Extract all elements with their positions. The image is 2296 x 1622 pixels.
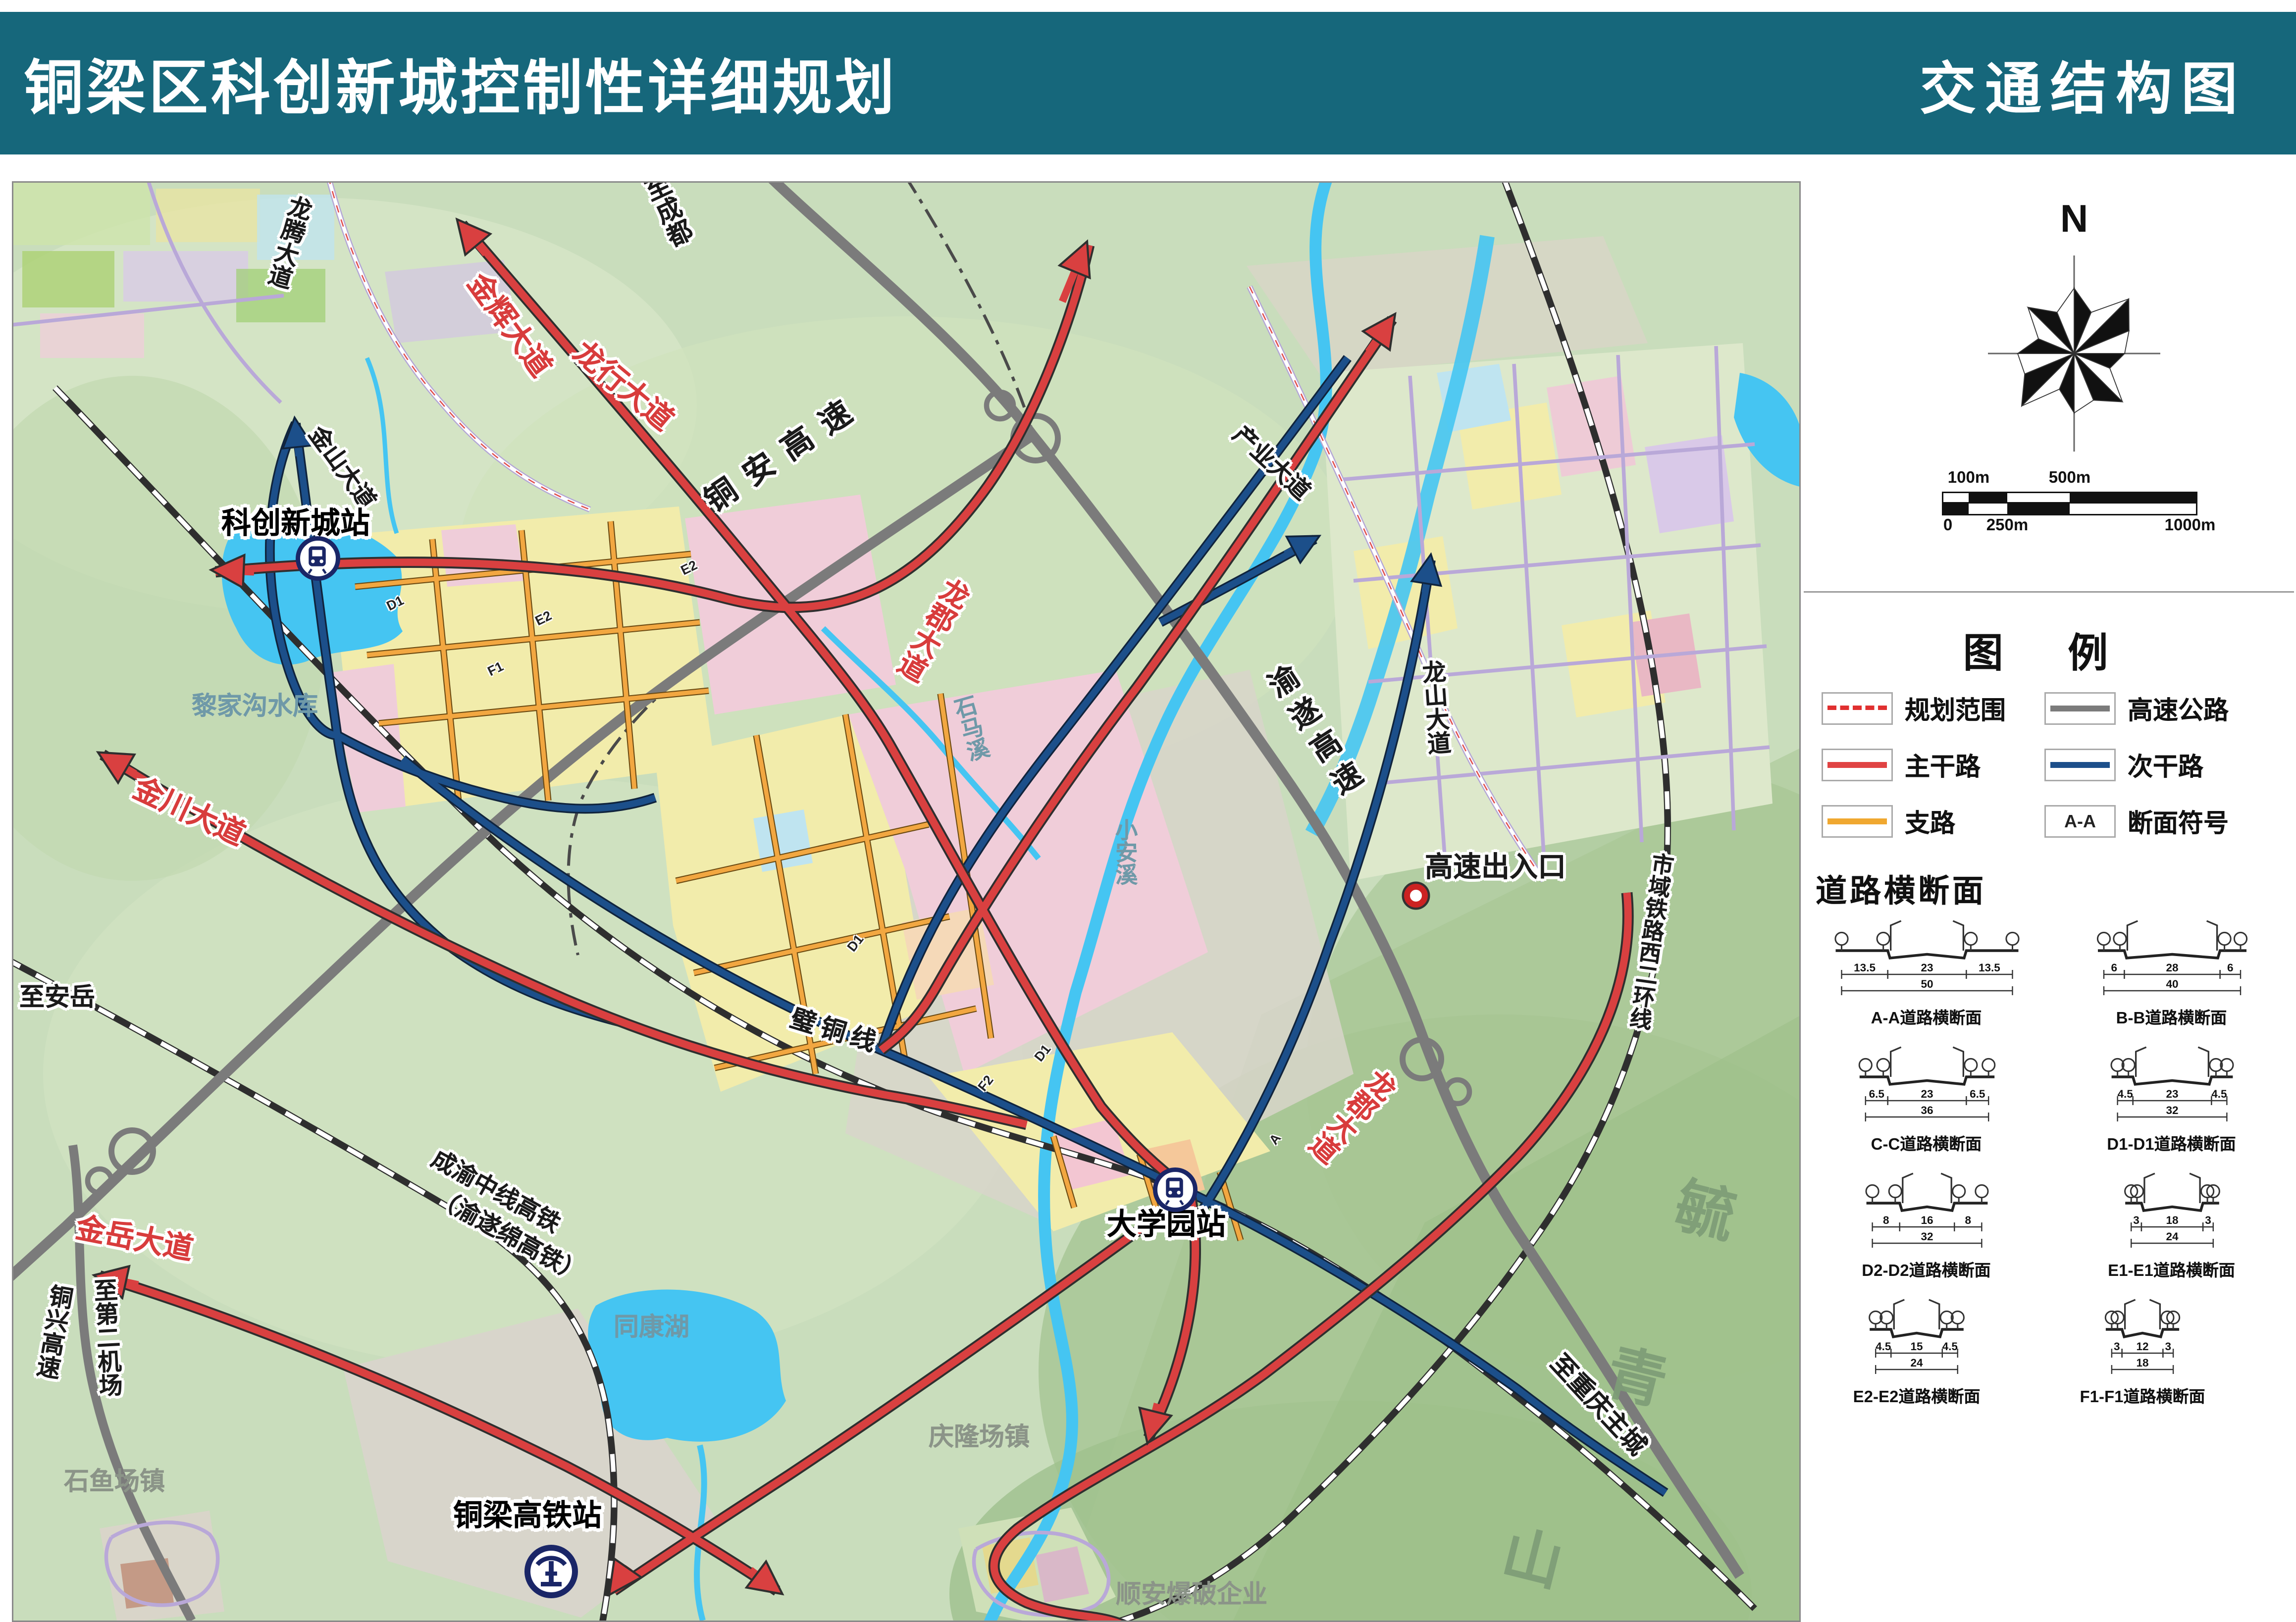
- legend-swatch-line: [2050, 761, 2110, 767]
- legend-item: 支路: [1822, 802, 2044, 839]
- section-diagram-D2-D2: 816832D2-D2道路横断面: [1814, 1165, 2039, 1282]
- section-diagram-A-A: 13.52313.550A-A道路横断面: [1814, 912, 2039, 1029]
- panel-divider: [1804, 591, 2294, 593]
- map-label-dark: 渝遂高速: [1258, 662, 1369, 809]
- scale-label: 500m: [2049, 469, 2090, 487]
- legend-swatch-box: A-A: [2064, 811, 2096, 831]
- scale-bar-row: [1943, 493, 2196, 504]
- svg-text:28: 28: [2165, 962, 2178, 974]
- svg-text:8: 8: [1882, 1214, 1888, 1226]
- section-caption: A-A道路横断面: [1814, 1006, 2039, 1029]
- svg-text:12: 12: [2136, 1340, 2148, 1353]
- section-drawing: 4.5234.532: [2059, 1038, 2285, 1130]
- svg-text:3: 3: [2114, 1340, 2120, 1353]
- metro-station-icon: [296, 536, 340, 581]
- legend-label: 规划范围: [1905, 689, 2006, 726]
- svg-text:23: 23: [2165, 1088, 2178, 1100]
- scale-label: 1000m: [2165, 517, 2216, 535]
- map-label-mtn: 青: [1600, 1341, 1673, 1416]
- map-label-dark: 铜兴高速: [30, 1282, 71, 1380]
- map-label-dark: 璧铜线: [787, 1006, 884, 1058]
- legend-label: 高速公路: [2128, 689, 2229, 726]
- map-label-mark: F1: [486, 660, 506, 679]
- north-rose: [1963, 242, 2186, 465]
- legend-swatch: [1822, 748, 1893, 781]
- map-label-area: 庆隆场镇: [929, 1424, 1030, 1451]
- section-caption: D2-D2道路横断面: [1814, 1258, 2039, 1282]
- map-label-mark: A: [1267, 1132, 1284, 1148]
- svg-text:4.5: 4.5: [1942, 1340, 1958, 1353]
- svg-text:6.5: 6.5: [1868, 1088, 1883, 1100]
- legend-swatch-line: [2050, 705, 2110, 711]
- map-label-area: 石鱼场镇: [64, 1469, 165, 1496]
- map-label-dark: 龙山大道: [1416, 659, 1448, 756]
- map-label-area: 顺安爆破企业: [1116, 1582, 1267, 1609]
- legend-swatch: [1822, 805, 1893, 837]
- scale-bar: 100m500m0250m1000m: [1943, 472, 2211, 556]
- legend-swatch-line: [1827, 818, 1887, 824]
- railway-station-icon: [524, 1545, 578, 1598]
- svg-text:15: 15: [1910, 1340, 1923, 1353]
- map-label-mark: D1: [845, 933, 867, 955]
- section-caption: E1-E1道路横断面: [2059, 1258, 2285, 1282]
- map-label-sta: 大学园站: [1107, 1211, 1226, 1242]
- planning-map: 金辉大道龙行大道龙郡大道龙郡大道金川大道金岳大道铜安高速渝遂高速至成都至安岳至重…: [12, 181, 1801, 1622]
- map-label-mtn: 山: [1496, 1522, 1569, 1597]
- svg-text:6.5: 6.5: [1969, 1088, 1984, 1100]
- map-label-dark: 市域铁路西二环线: [1626, 851, 1674, 1031]
- svg-text:4.5: 4.5: [1876, 1340, 1891, 1353]
- map-label-mark: D1: [385, 594, 406, 614]
- legend-swatch: A-A: [2044, 805, 2116, 837]
- svg-text:40: 40: [2165, 978, 2178, 990]
- legend-item: 高速公路: [2044, 689, 2285, 726]
- section-drawing: 312318: [2030, 1291, 2255, 1383]
- svg-text:16: 16: [1920, 1214, 1932, 1226]
- cross-sections-title: 道路横断面: [1816, 867, 1986, 912]
- legend-swatch: [2044, 748, 2116, 781]
- section-caption: C-C道路横断面: [1814, 1132, 2039, 1156]
- legend-label: 主干路: [1905, 746, 1981, 783]
- section-diagram-E2-E2: 4.5154.524E2-E2道路横断面: [1804, 1291, 2030, 1408]
- legend-swatch: [2044, 692, 2116, 724]
- svg-text:23: 23: [1920, 962, 1932, 974]
- svg-text:18: 18: [2165, 1214, 2178, 1226]
- section-drawing: 6.5236.536: [1814, 1038, 2039, 1130]
- svg-text:32: 32: [2165, 1104, 2178, 1116]
- section-diagram-D1-D1: 4.5234.532D1-D1道路横断面: [2059, 1038, 2285, 1156]
- legend-label: 断面符号: [2128, 802, 2229, 839]
- scale-label: 100m: [1948, 469, 1989, 487]
- section-diagram-F2-F2: 410418F2-F2道路横断面: [2255, 1291, 2296, 1408]
- svg-text:3: 3: [2165, 1340, 2171, 1353]
- section-drawing: 410418: [2255, 1291, 2296, 1383]
- svg-text:4.5: 4.5: [2117, 1088, 2132, 1100]
- legend-title: 图 例: [1801, 621, 2296, 679]
- section-caption: B-B道路横断面: [2059, 1006, 2285, 1029]
- north-arrow: N: [1955, 196, 2193, 472]
- map-label-mtn: 毓: [1669, 1175, 1741, 1250]
- svg-text:8: 8: [1964, 1214, 1971, 1226]
- map-label-red: 龙郡大道: [890, 572, 972, 684]
- map-label-sta: 科创新城站: [221, 509, 370, 541]
- map-labels-layer: 金辉大道龙行大道龙郡大道龙郡大道金川大道金岳大道铜安高速渝遂高速至成都至安岳至重…: [13, 183, 1799, 1621]
- map-label-dark: 至第二机场: [88, 1277, 119, 1397]
- svg-text:4.5: 4.5: [2211, 1088, 2226, 1100]
- section-drawing: 816832: [1814, 1165, 2039, 1257]
- svg-text:3: 3: [2133, 1214, 2139, 1226]
- svg-text:24: 24: [1910, 1357, 1923, 1369]
- map-label-mark: D1: [1033, 1043, 1054, 1065]
- svg-text:18: 18: [2136, 1357, 2148, 1369]
- section-drawing: 4.5154.524: [1804, 1291, 2030, 1383]
- map-label-dark: 铜安高速: [700, 389, 871, 519]
- svg-text:13.5: 13.5: [1978, 962, 2000, 974]
- svg-text:6: 6: [2110, 962, 2117, 974]
- scale-label: 250m: [1986, 517, 2028, 535]
- legend-swatch-dashed: [1827, 706, 1887, 710]
- map-label-dark: 产业大道: [1227, 423, 1313, 507]
- section-caption: F2-F2道路横断面: [2255, 1384, 2296, 1408]
- map-label-mark: E2: [679, 559, 700, 579]
- scale-label: 0: [1943, 517, 1952, 535]
- map-label-sta: 铜梁高铁站: [453, 1502, 602, 1533]
- section-diagram-B-B: 628640B-B道路横断面: [2059, 912, 2285, 1029]
- legend-label: 次干路: [2128, 746, 2203, 783]
- page: 铜梁区科创新城控制性详细规划 交通结构图: [0, 0, 2296, 1622]
- highway-exit-marker: [1404, 884, 1428, 908]
- map-label-water: 黎家沟水库: [192, 694, 318, 720]
- title-bar: 铜梁区科创新城控制性详细规划 交通结构图: [0, 12, 2296, 154]
- legend-item: A-A断面符号: [2044, 802, 2285, 839]
- scale-bar-row: [1943, 504, 2196, 514]
- map-label-mark: E2: [533, 609, 554, 629]
- map-label-water: 同康湖: [614, 1315, 689, 1341]
- map-label-mark: F2: [976, 1073, 997, 1094]
- section-caption: D1-D1道路横断面: [2059, 1132, 2285, 1156]
- map-label-dark: 高速出入口: [1425, 854, 1566, 884]
- svg-text:23: 23: [1920, 1088, 1932, 1100]
- svg-text:13.5: 13.5: [1853, 962, 1875, 974]
- section-drawing: 13.52313.550: [1814, 912, 2039, 1004]
- map-label-red: 金岳大道: [73, 1214, 196, 1267]
- svg-text:50: 50: [1920, 978, 1932, 990]
- map-label-dark: 至成都: [637, 181, 693, 252]
- section-diagram-C-C: 6.5236.536C-C道路横断面: [1814, 1038, 2039, 1156]
- map-label-red: 金川大道: [128, 774, 249, 853]
- legend-label: 支路: [1905, 802, 1955, 839]
- legend-item: 次干路: [2044, 746, 2285, 783]
- side-panel: N 100m500m0250m1000m 图 例 规划范围高速公路主干路次干路支…: [1801, 181, 2296, 1622]
- north-label: N: [1955, 196, 2193, 242]
- map-label-water: 小安溪: [1113, 818, 1136, 885]
- map-label-dark: 金山大道: [302, 423, 378, 515]
- legend-swatch-line: [1827, 761, 1887, 767]
- map-label-dark: 龙腾大道: [261, 192, 311, 290]
- svg-text:3: 3: [2204, 1214, 2211, 1226]
- legend-swatch: [1822, 692, 1893, 724]
- section-caption: E2-E2道路横断面: [1804, 1384, 2030, 1408]
- map-label-red: 龙行大道: [567, 337, 678, 438]
- section-diagram-F1-F1: 312318F1-F1道路横断面: [2030, 1291, 2255, 1408]
- legend: 规划范围高速公路主干路次干路支路A-A断面符号: [1822, 689, 2285, 839]
- metro-station-icon: [1153, 1167, 1198, 1212]
- map-label-red: 龙郡大道: [1302, 1062, 1399, 1166]
- legend-item: 主干路: [1822, 746, 2044, 783]
- drawing-title: 交通结构图: [1920, 43, 2246, 124]
- legend-item: 规划范围: [1822, 689, 2044, 726]
- page-title: 铜梁区科创新城控制性详细规划: [24, 40, 897, 126]
- map-label-red: 金辉大道: [461, 269, 556, 383]
- section-drawing: 318324: [2059, 1165, 2285, 1257]
- svg-text:36: 36: [1920, 1104, 1932, 1116]
- map-label-water: 石马溪: [949, 693, 991, 764]
- map-label-dark: 至安岳: [19, 985, 95, 1012]
- section-diagram-E1-E1: 318324E1-E1道路横断面: [2059, 1165, 2285, 1282]
- section-drawing: 628640: [2059, 912, 2285, 1004]
- cross-sections: 13.52313.550A-A道路横断面628640B-B道路横断面6.5236…: [1804, 912, 2294, 1417]
- section-caption: F1-F1道路横断面: [2030, 1384, 2255, 1408]
- svg-text:6: 6: [2227, 962, 2233, 974]
- svg-text:32: 32: [1920, 1230, 1932, 1243]
- svg-text:24: 24: [2165, 1230, 2178, 1243]
